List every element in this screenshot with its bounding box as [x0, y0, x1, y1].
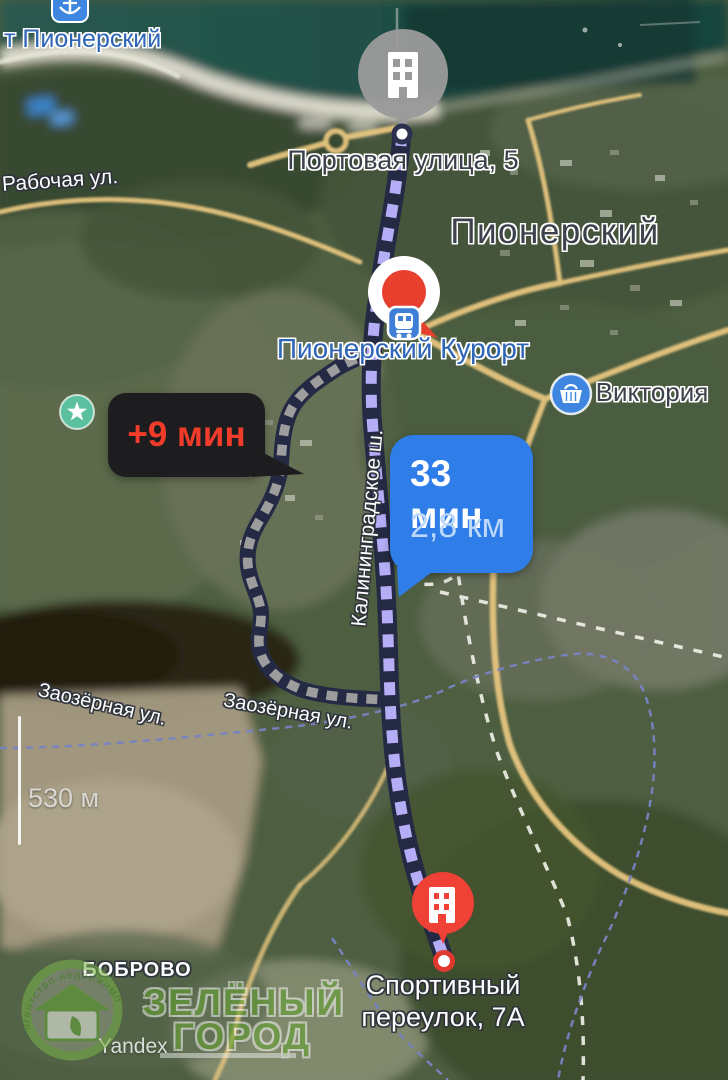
route-start-dot: [394, 126, 410, 142]
route-badge-alt[interactable]: +9 мин: [108, 393, 265, 477]
map-canvas[interactable]: т Пионерский Портовая улица, 5 Пионерски…: [0, 0, 728, 1080]
village-label: БОБРОВО: [82, 960, 191, 981]
origin-pin[interactable]: [358, 29, 448, 142]
station-label[interactable]: Пионерский Курорт: [277, 334, 529, 363]
yandex-watermark: Yandex: [98, 1036, 168, 1058]
scale-ruler: [18, 716, 21, 845]
badge-main-distance: 2,8 км: [410, 507, 505, 546]
destination-address-label: Спортивный переулок, 7А: [343, 970, 543, 1034]
building-icon: [429, 887, 455, 923]
store-basket-icon[interactable]: [551, 374, 591, 414]
scale-label: 530 м: [28, 784, 99, 812]
city-label: Пионерский: [450, 214, 659, 251]
port-anchor-icon[interactable]: [52, 0, 88, 22]
badge-alt-time: +9 мин: [127, 415, 245, 455]
favorite-star-icon[interactable]: [60, 395, 94, 429]
building-icon: [388, 52, 418, 98]
origin-address-label: Портовая улица, 5: [287, 146, 518, 174]
port-label: т Пионерский: [4, 26, 161, 52]
destination-pin[interactable]: [412, 872, 474, 970]
route-badge-main[interactable]: 33 мин 2,8 км: [390, 435, 533, 573]
route-end-dot: [436, 953, 453, 970]
store-label[interactable]: Виктория: [596, 379, 709, 406]
